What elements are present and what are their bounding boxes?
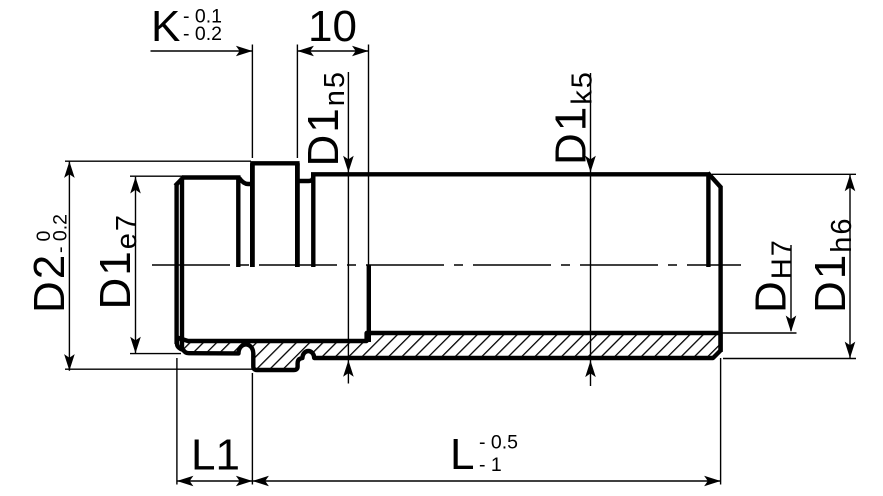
svg-text:- 0.2: - 0.2	[183, 23, 222, 45]
svg-text:DH7: DH7	[747, 238, 799, 313]
svg-text:D1n5: D1n5	[299, 70, 351, 167]
svg-text:L1: L1	[191, 431, 240, 480]
svg-text:L: L	[450, 430, 474, 479]
svg-text:D1k5: D1k5	[547, 70, 599, 165]
svg-text:D2: D2	[25, 253, 74, 313]
svg-text:- 1: - 1	[479, 454, 502, 476]
svg-text:K: K	[151, 2, 180, 51]
svg-text:D1e7: D1e7	[91, 213, 143, 310]
svg-text:10: 10	[308, 2, 357, 51]
svg-text:- 0.5: - 0.5	[479, 432, 518, 454]
svg-text:- 0.2: - 0.2	[49, 214, 71, 253]
svg-text:D1h6: D1h6	[806, 216, 858, 313]
